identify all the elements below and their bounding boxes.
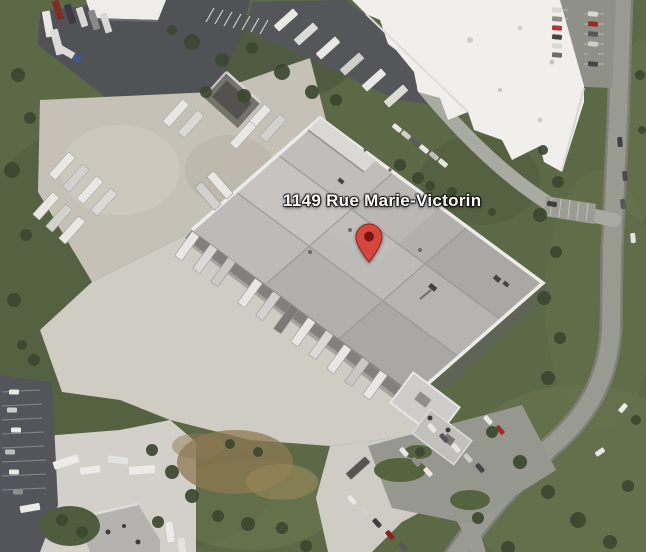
satellite-imagery: [0, 0, 646, 552]
map-pin-body: [356, 224, 382, 262]
map-pin[interactable]: [354, 223, 384, 263]
map-canvas[interactable]: 1149 Rue Marie-Victorin: [0, 0, 646, 552]
top-left-truck-lot: [86, 0, 166, 21]
map-pin-dot: [364, 232, 374, 242]
